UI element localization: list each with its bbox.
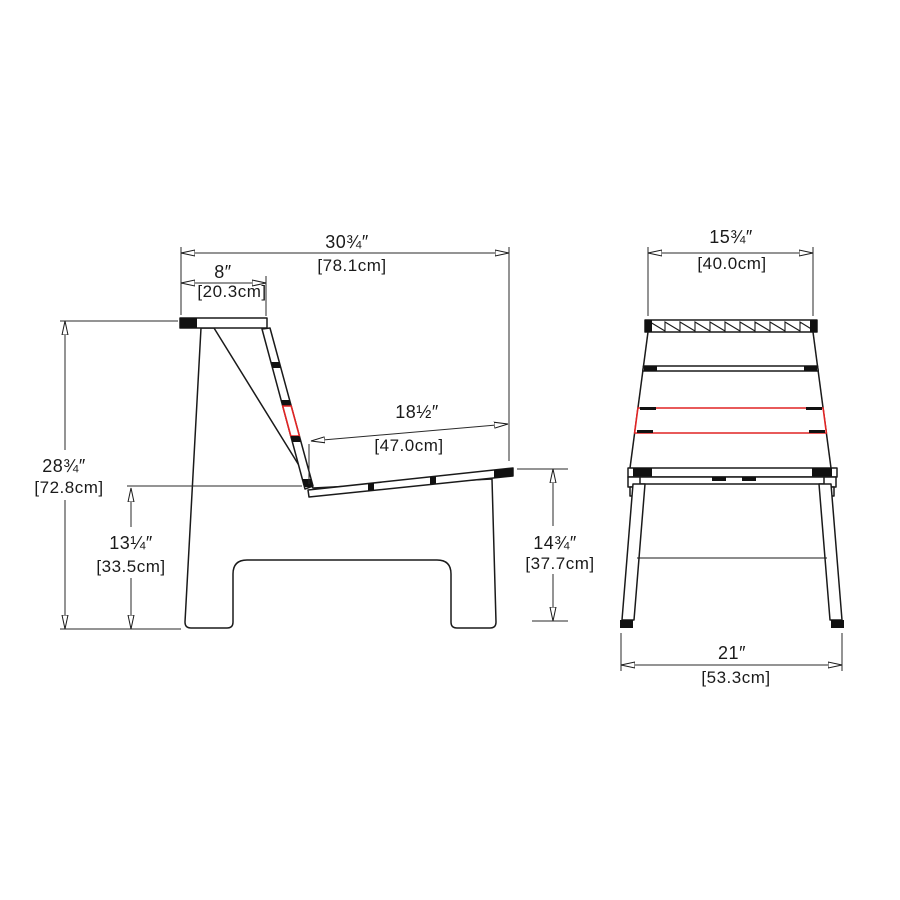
dim-overall-height-cm: [72.8cm] xyxy=(34,478,103,497)
front-foot-left xyxy=(620,620,633,628)
front-seat-sub-bar-mark-1 xyxy=(712,477,726,481)
front-back-left-edge xyxy=(630,332,648,468)
dim-overall-width-in: 30¾″ xyxy=(325,232,369,252)
side-backrest-joint-1 xyxy=(271,362,281,368)
dim-seat-height-front-in: 14¾″ xyxy=(533,533,577,553)
front-slat-joint-cap-left xyxy=(644,366,657,371)
drawing-canvas: 30¾″ [78.1cm] 8″ [20.3cm] 18½″ [47.0cm] … xyxy=(0,0,900,900)
dim-base-width-in: 21″ xyxy=(718,643,746,663)
side-seat-joint-2 xyxy=(430,476,436,484)
front-leg-left xyxy=(622,484,645,620)
front-slat-joint-bar xyxy=(643,366,818,371)
dim-overall-height-in: 28¾″ xyxy=(42,456,86,476)
front-seat-sub-bar xyxy=(633,477,830,484)
side-backrest-red-highlight xyxy=(283,406,300,436)
technical-drawing: 30¾″ [78.1cm] 8″ [20.3cm] 18½″ [47.0cm] … xyxy=(0,0,900,900)
dim-seat-depth-cm: [47.0cm] xyxy=(374,436,443,455)
front-view: 15¾″ [40.0cm] 21″ [53.3cm] xyxy=(620,227,844,687)
front-back-right-edge xyxy=(813,332,831,468)
dim-seat-height-rear-in: 13¼″ xyxy=(109,533,153,553)
front-seat-sub-bar-mark-2 xyxy=(742,477,756,481)
front-red-slat-mark-bl xyxy=(637,430,653,433)
dim-seat-depth-in: 18½″ xyxy=(395,402,439,422)
front-red-slat-mark-tl xyxy=(640,407,656,410)
front-top-bar-cap-right xyxy=(810,320,817,332)
dim-back-top-width-in: 8″ xyxy=(214,262,232,282)
front-seat-bar-cap-left xyxy=(633,468,652,477)
dim-overall-width-cm: [78.1cm] xyxy=(317,256,386,275)
dim-back-top-width-cm: [20.3cm] xyxy=(197,282,266,301)
side-seat-joint-1 xyxy=(368,483,374,491)
dim-back-width-cm: [40.0cm] xyxy=(697,254,766,273)
front-slat-joint-cap-right xyxy=(804,366,817,371)
dim-seat-height-rear-cm: [33.5cm] xyxy=(96,557,165,576)
front-seat-bar xyxy=(628,468,837,477)
side-top-bar-cap xyxy=(180,318,197,328)
dim-base-width-cm: [53.3cm] xyxy=(701,668,770,687)
front-red-slat-mark-tr xyxy=(806,407,822,410)
dim-seat-height-front-cm: [37.7cm] xyxy=(525,554,594,573)
side-backrest-joint-3 xyxy=(291,436,301,442)
side-seat-slat xyxy=(308,468,513,497)
front-red-slat xyxy=(635,408,827,433)
dim-back-width-in: 15¾″ xyxy=(709,227,753,247)
front-top-bar-cap-left xyxy=(645,320,652,332)
front-seat-bar-cap-right xyxy=(812,468,832,477)
side-backrest-joint-2 xyxy=(281,400,291,406)
front-red-slat-mark-br xyxy=(809,430,825,433)
front-foot-right xyxy=(831,620,844,628)
side-view: 30¾″ [78.1cm] 8″ [20.3cm] 18½″ [47.0cm] … xyxy=(34,232,594,629)
front-leg-right xyxy=(819,484,842,620)
